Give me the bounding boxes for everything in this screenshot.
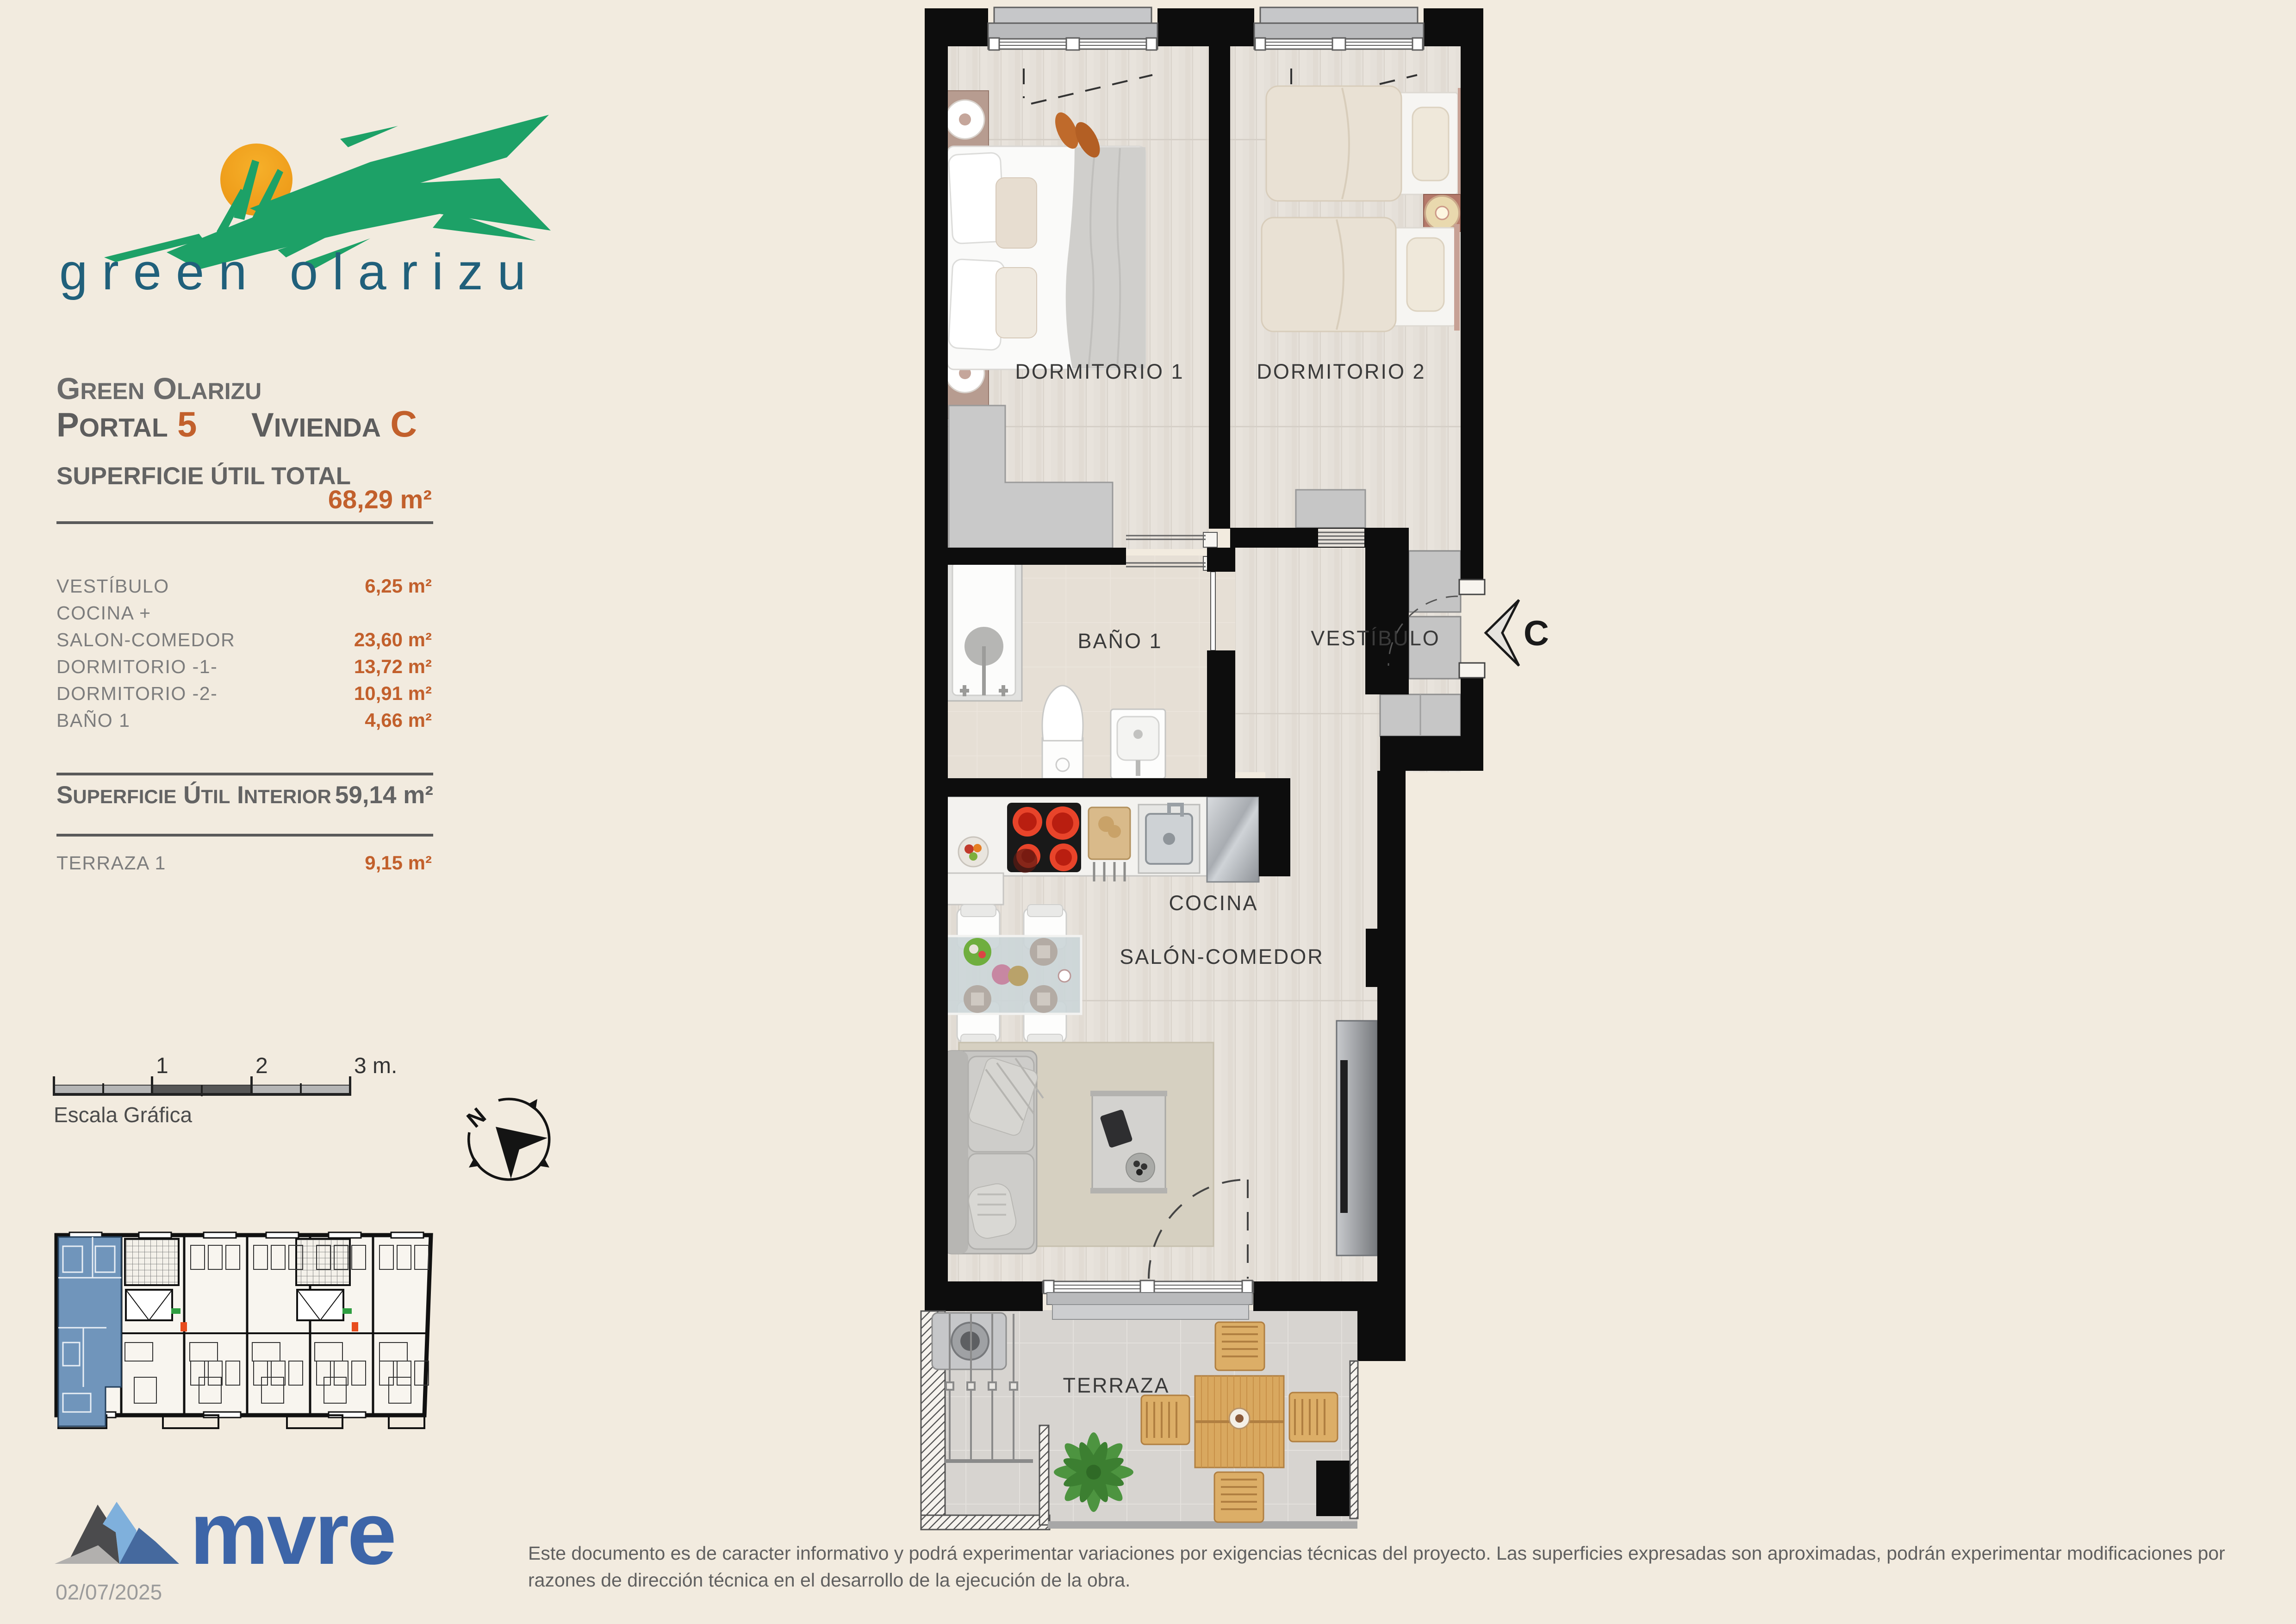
svg-text:4,66 m²: 4,66 m² bbox=[365, 709, 432, 731]
svg-text:COCINA: COCINA bbox=[1169, 891, 1258, 915]
svg-text:23,60 m²: 23,60 m² bbox=[354, 629, 432, 650]
svg-text:9,15 m²: 9,15 m² bbox=[365, 852, 432, 874]
svg-text:6,25 m²: 6,25 m² bbox=[365, 575, 432, 597]
svg-text:DORMITORIO 2: DORMITORIO 2 bbox=[1257, 360, 1425, 383]
svg-text:Este documento es de caracter: Este documento es de caracter informativ… bbox=[528, 1543, 2225, 1564]
svg-text:VESTÍBULO: VESTÍBULO bbox=[56, 575, 169, 597]
svg-text:razones de dirección técnica e: razones de dirección técnica en el desar… bbox=[528, 1569, 1130, 1591]
svg-text:68,29 m²: 68,29 m² bbox=[328, 485, 432, 514]
svg-text:VESTÍBULO: VESTÍBULO bbox=[1311, 626, 1440, 650]
svg-text:DORMITORIO -2-: DORMITORIO -2- bbox=[56, 683, 218, 704]
svg-text:BAÑO 1: BAÑO 1 bbox=[1077, 629, 1162, 653]
svg-text:10,91 m²: 10,91 m² bbox=[354, 682, 432, 704]
svg-text:Escala Gráfica: Escala Gráfica bbox=[54, 1103, 193, 1127]
svg-text:C: C bbox=[1524, 614, 1549, 653]
svg-text:SALÓN-COMEDOR: SALÓN-COMEDOR bbox=[1120, 945, 1324, 968]
svg-text:DORMITORIO -1-: DORMITORIO -1- bbox=[56, 656, 218, 677]
svg-text:59,14 m²: 59,14 m² bbox=[335, 781, 433, 809]
svg-text:2: 2 bbox=[255, 1054, 268, 1078]
svg-text:02/07/2025: 02/07/2025 bbox=[56, 1580, 162, 1604]
svg-text:COCINA +: COCINA + bbox=[56, 602, 151, 624]
svg-text:DORMITORIO 1: DORMITORIO 1 bbox=[1015, 360, 1184, 383]
svg-text:3 m.: 3 m. bbox=[354, 1054, 397, 1078]
svg-text:TERRAZA: TERRAZA bbox=[1063, 1374, 1170, 1397]
svg-text:SUPERFICIE ÚTIL TOTAL: SUPERFICIE ÚTIL TOTAL bbox=[56, 462, 351, 490]
svg-text:1: 1 bbox=[156, 1054, 168, 1078]
svg-text:BAÑO 1: BAÑO 1 bbox=[56, 710, 130, 731]
svg-text:mvre: mvre bbox=[190, 1483, 395, 1583]
svg-text:SALON-COMEDOR: SALON-COMEDOR bbox=[56, 629, 235, 650]
svg-text:13,72 m²: 13,72 m² bbox=[354, 656, 432, 677]
svg-text:TERRAZA 1: TERRAZA 1 bbox=[56, 852, 166, 874]
svg-text:green olarizu: green olarizu bbox=[59, 244, 540, 300]
